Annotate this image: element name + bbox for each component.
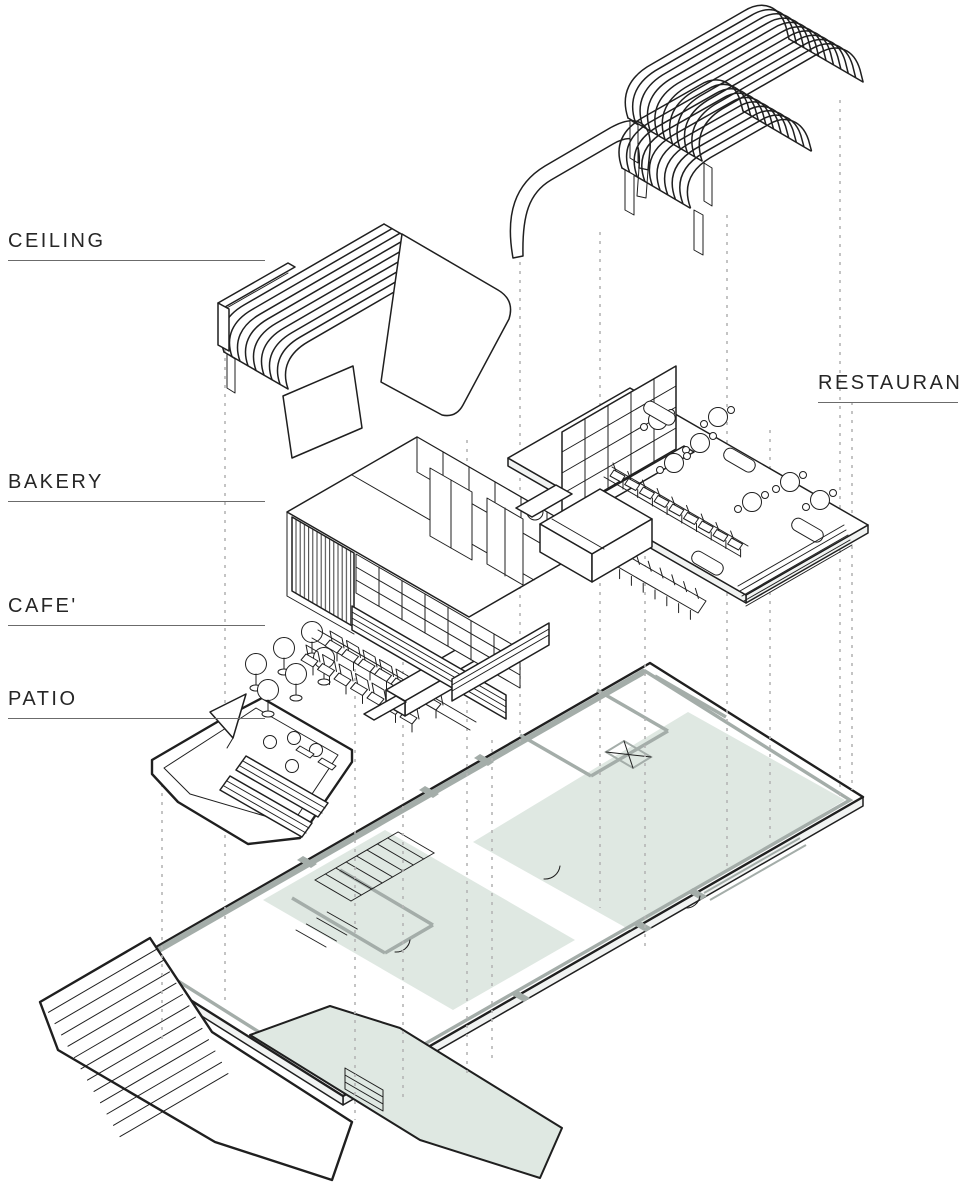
label-patio: PATIO: [8, 688, 265, 719]
restaurant-furniture-plate: [508, 366, 868, 619]
ceiling-canopy-restaurant: [619, 5, 863, 255]
floor-plan: [40, 663, 863, 1180]
exploded-axonometric-diagram: CEILING BAKERY CAFE' PATIO RESTAURANT: [0, 0, 960, 1186]
label-restaurant: RESTAURANT: [818, 372, 958, 403]
label-cafe: CAFE': [8, 595, 265, 626]
axon-drawing: [0, 0, 960, 1186]
label-bakery: BAKERY: [8, 471, 265, 502]
label-ceiling: CEILING: [8, 230, 265, 261]
canopy-rear-vault: [625, 5, 863, 206]
ceiling-flat-panel: [283, 366, 362, 458]
